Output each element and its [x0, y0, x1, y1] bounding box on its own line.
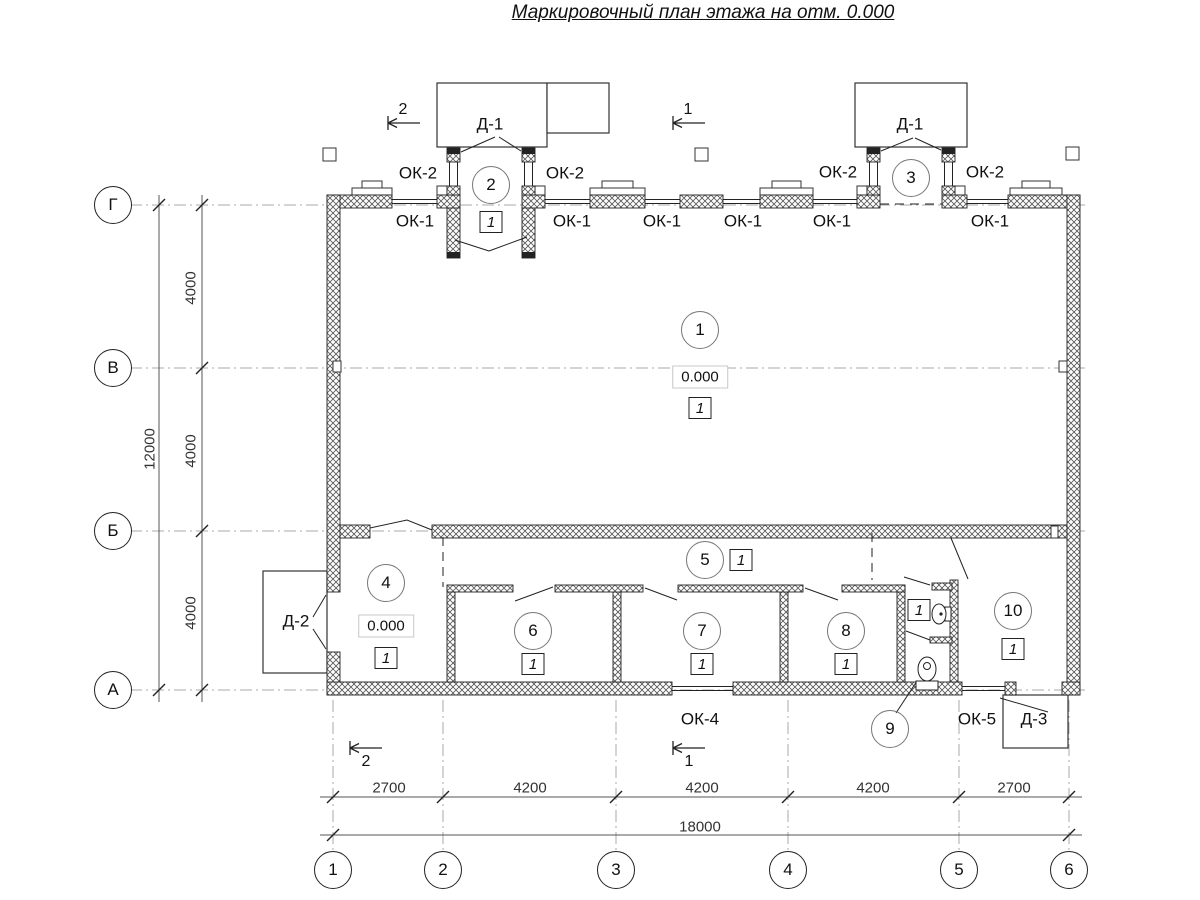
room-number-5: 5 [686, 541, 724, 579]
floor-type-marker: 1 [522, 653, 545, 675]
floor-plan-drawing: Маркировочный план этажа на отм. 0.000 Д… [0, 0, 1200, 900]
sink-icon [932, 604, 946, 624]
dim-2700-right: 2700 [997, 781, 1030, 796]
floor-type-marker: 1 [691, 653, 714, 675]
door-label-d1-right: Д-1 [897, 116, 924, 133]
window-label-ok2-2: ОК-2 [546, 165, 584, 182]
elevation-mark: 0.000 [358, 615, 414, 638]
door-label-d1-left: Д-1 [477, 116, 504, 133]
dim-4000-mid: 4000 [184, 434, 199, 467]
axis-marker-square [323, 148, 336, 161]
axis-bubble-6: 6 [1050, 851, 1088, 889]
door-label-d2: Д-2 [283, 613, 310, 630]
room-number-1: 1 [681, 311, 719, 349]
window-label-ok1-3: ОК-1 [643, 213, 681, 230]
floor-type-marker: 1 [1002, 638, 1025, 660]
dim-total-12000: 12000 [143, 428, 158, 470]
axis-bubble-В: В [94, 349, 132, 387]
sink-drain [939, 612, 942, 615]
section-mark-2-bottom: 2 [362, 754, 371, 770]
plan-geometry [0, 0, 1200, 900]
room-number-3: 3 [892, 159, 930, 197]
toilet-tank [916, 681, 938, 690]
window-label-ok1-5: ОК-1 [813, 213, 851, 230]
axis-bubble-3: 3 [597, 851, 635, 889]
axis-bubble-А: А [94, 671, 132, 709]
elevation-mark: 0.000 [672, 366, 728, 389]
dim-total-18000: 18000 [679, 820, 721, 835]
drawing-title: Маркировочный план этажа на отм. 0.000 [512, 2, 895, 24]
axis-marker-square [1066, 147, 1079, 160]
window-label-ok2-3: ОК-2 [819, 164, 857, 181]
dimension-lines [153, 195, 1082, 841]
window-label-ok1-6: ОК-1 [971, 213, 1009, 230]
window-label-ok1-1: ОК-1 [396, 213, 434, 230]
door-label-d3: Д-3 [1021, 711, 1048, 728]
toilet-detail [924, 663, 931, 670]
section-mark-1-bottom: 1 [685, 754, 694, 770]
room-number-6: 6 [514, 612, 552, 650]
room-number-9: 9 [871, 710, 909, 748]
window-label-ok5: ОК-5 [958, 711, 996, 728]
window-label-ok1-4: ОК-1 [724, 213, 762, 230]
axis-bubble-5: 5 [940, 851, 978, 889]
room-number-10: 10 [994, 592, 1032, 630]
dim-4200-2: 4200 [685, 781, 718, 796]
dim-4000-top: 4000 [184, 271, 199, 304]
window-label-ok1-2: ОК-1 [553, 213, 591, 230]
axis-bubble-2: 2 [424, 851, 462, 889]
floor-type-marker: 1 [730, 549, 753, 571]
axis-bubble-4: 4 [769, 851, 807, 889]
room-number-7: 7 [683, 612, 721, 650]
dim-4200-1: 4200 [513, 781, 546, 796]
room-number-4: 4 [367, 564, 405, 602]
floor-type-marker: 1 [835, 653, 858, 675]
section-mark-2-top: 2 [399, 102, 408, 118]
dim-4200-3: 4200 [856, 781, 889, 796]
dim-4000-bottom: 4000 [184, 596, 199, 629]
section-mark-1-top: 1 [684, 102, 693, 118]
axis-bubble-Г: Г [94, 186, 132, 224]
window-label-ok4: ОК-4 [681, 711, 719, 728]
floor-type-marker: 1 [908, 599, 931, 621]
dim-2700-left: 2700 [372, 781, 405, 796]
floor-type-marker: 1 [375, 647, 398, 669]
axis-marker-square [695, 148, 708, 161]
axis-bubble-1: 1 [314, 851, 352, 889]
floor-type-marker: 1 [689, 397, 712, 419]
room-number-8: 8 [827, 612, 865, 650]
room-number-2: 2 [472, 166, 510, 204]
window-label-ok2-4: ОК-2 [966, 164, 1004, 181]
axis-bubble-Б: Б [94, 512, 132, 550]
floor-type-marker: 1 [480, 211, 503, 233]
window-label-ok2-1: ОК-2 [399, 165, 437, 182]
